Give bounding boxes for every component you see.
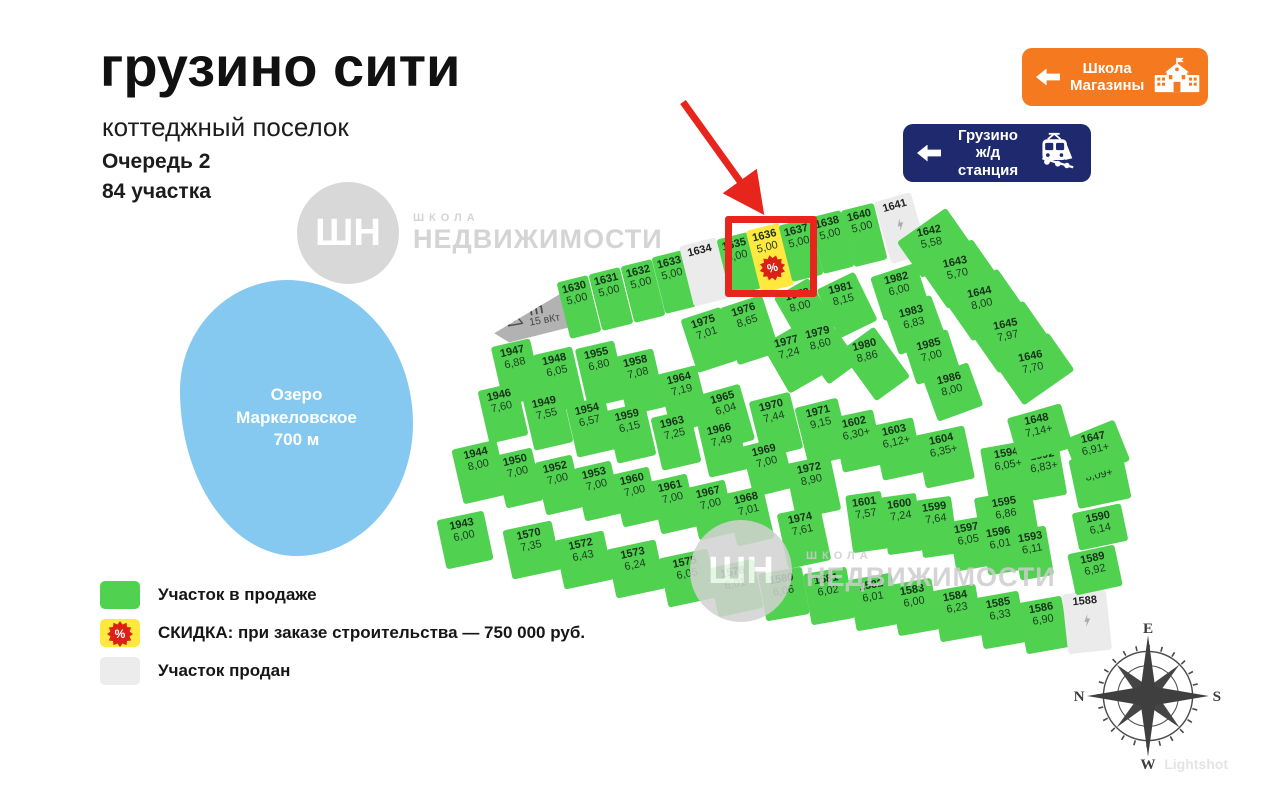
plot-1583[interactable]: 15836,00 (890, 578, 940, 637)
compass-n: N (1074, 688, 1085, 705)
plot-area: 6,00 (901, 594, 927, 610)
sale-swatch (100, 581, 140, 609)
school-shops-badge[interactable]: Школа Магазины (1022, 48, 1208, 106)
legend-item-sale: Участок в продаже (100, 580, 585, 610)
agency-logo-icon: ШН (297, 182, 399, 284)
plot-area: 6,33 (987, 607, 1013, 623)
warning-triangle-icon (505, 308, 525, 332)
compass-e: E (1143, 620, 1153, 637)
school-building-icon (1154, 57, 1200, 98)
station-badge-label: Грузино ж/д станция (951, 127, 1025, 179)
plot-1578[interactable]: 15786,01 (708, 559, 763, 617)
page-subtitle: коттеджный поселок (102, 112, 349, 143)
plot-area: 6,02 (815, 583, 841, 599)
plot-area: 6,06 (770, 583, 796, 599)
plot-count-label: 84 участка (102, 180, 211, 204)
lightshot-watermark: Lightshot (1164, 756, 1228, 772)
plot-1580[interactable]: 15806,06 (758, 567, 810, 622)
plot-area: 6,01 (987, 536, 1013, 552)
lake-markelovskoye: Озеро Маркеловское 700 м (180, 280, 413, 556)
plot-1570[interactable]: 15707,35 (502, 520, 561, 579)
plot-1950[interactable]: 19507,00 (494, 447, 543, 508)
plot-area: 6,05 (955, 532, 981, 548)
plot-area: 6,86 (993, 506, 1019, 522)
compass-w: W (1140, 756, 1155, 772)
plot-1648[interactable]: 16487,14+ (1007, 403, 1074, 463)
plot-area: 6,01 (860, 589, 886, 605)
plot-1959[interactable]: 19596,15 (605, 402, 656, 464)
phase-label: Очередь 2 (102, 150, 210, 174)
plot-1974[interactable]: 19747,61 (777, 505, 832, 569)
plot-area: 6,90 (1030, 612, 1056, 628)
railway-station-badge[interactable]: Грузино ж/д станция (903, 124, 1091, 182)
school-badge-label: Школа Магазины (1070, 60, 1144, 95)
plot-1593[interactable]: 15936,11 (1012, 525, 1054, 580)
plot-number: 1641 (881, 197, 908, 215)
plot-1590[interactable]: 15906,14 (1072, 503, 1129, 551)
left-arrow-icon (917, 145, 941, 162)
plot-1572[interactable]: 15726,43 (554, 530, 613, 589)
site-plan: грузино сити коттеджный поселок Очередь … (0, 0, 1280, 788)
discount-percent-icon: % (107, 621, 133, 647)
sold-swatch (100, 657, 140, 685)
plot-1589[interactable]: 15896,92 (1067, 544, 1123, 595)
plot-area: 7,57 (853, 507, 879, 522)
plot-number: 1634 (686, 242, 713, 260)
plot-area: 6,11 (1019, 541, 1045, 557)
legend-item-discount: % СКИДКА: при заказе строительства — 750… (100, 618, 585, 648)
tp-label: ТП 15 вКт (526, 301, 561, 330)
lake-label: Озеро Маркеловское 700 м (236, 384, 357, 453)
left-arrow-icon (1036, 69, 1060, 86)
plot-area: 7,24 (888, 509, 914, 524)
legend: Участок в продаже % СКИДКА: при заказе с… (100, 580, 585, 694)
plot-1575[interactable]: 15756,05 (658, 548, 717, 607)
plot-number: 1588 (1072, 594, 1098, 609)
train-icon (1035, 132, 1077, 175)
plot-1585[interactable]: 15856,33 (975, 591, 1027, 650)
plot-area: 6,23 (944, 600, 970, 616)
lightning-icon (890, 214, 910, 236)
legend-item-sold: Участок продан (100, 656, 585, 686)
plot-1584[interactable]: 15846,23 (932, 584, 984, 643)
plot-1581[interactable]: 15816,02 (803, 567, 855, 626)
lightning-icon (1078, 610, 1095, 630)
plot-1588[interactable]: 1588 (1062, 590, 1112, 654)
discount-swatch: % (100, 619, 140, 647)
plot-area: 7,64 (923, 512, 949, 527)
compass-s: S (1213, 688, 1221, 705)
page-title: грузино сити (100, 34, 460, 99)
plot-1603[interactable]: 16036,12+ (872, 417, 925, 481)
plot-1604[interactable]: 16046,35+ (915, 425, 975, 488)
plot-1968[interactable]: 19687,01 (725, 485, 774, 546)
plot-1943[interactable]: 19436,00 (436, 511, 493, 570)
plot-1573[interactable]: 15736,24 (606, 539, 665, 598)
highlight-rectangle (725, 216, 817, 297)
